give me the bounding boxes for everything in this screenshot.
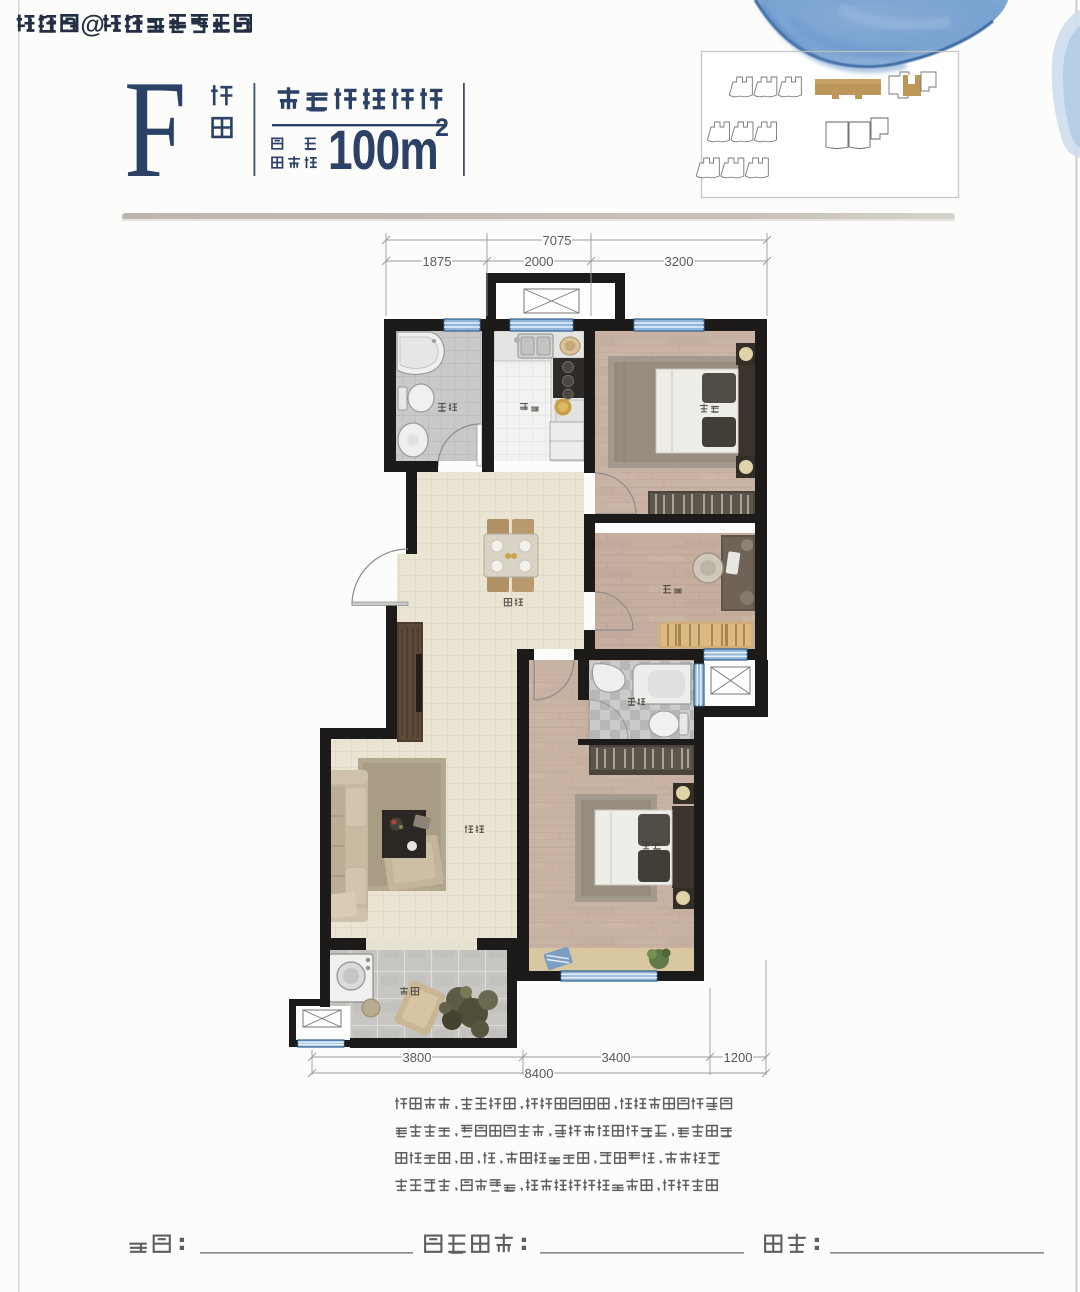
- svg-text:7075: 7075: [543, 233, 572, 248]
- svg-text:3200: 3200: [665, 254, 694, 269]
- svg-text:@: @: [80, 11, 104, 39]
- svg-text:2000: 2000: [525, 254, 554, 269]
- svg-text:1875: 1875: [423, 254, 452, 269]
- svg-text:3800: 3800: [403, 1050, 432, 1065]
- svg-text:F: F: [124, 52, 186, 207]
- svg-text:3400: 3400: [602, 1050, 631, 1065]
- svg-text:1200: 1200: [724, 1050, 753, 1065]
- svg-text:2: 2: [435, 114, 449, 142]
- svg-text:100m: 100m: [328, 118, 438, 181]
- svg-text:8400: 8400: [525, 1066, 554, 1081]
